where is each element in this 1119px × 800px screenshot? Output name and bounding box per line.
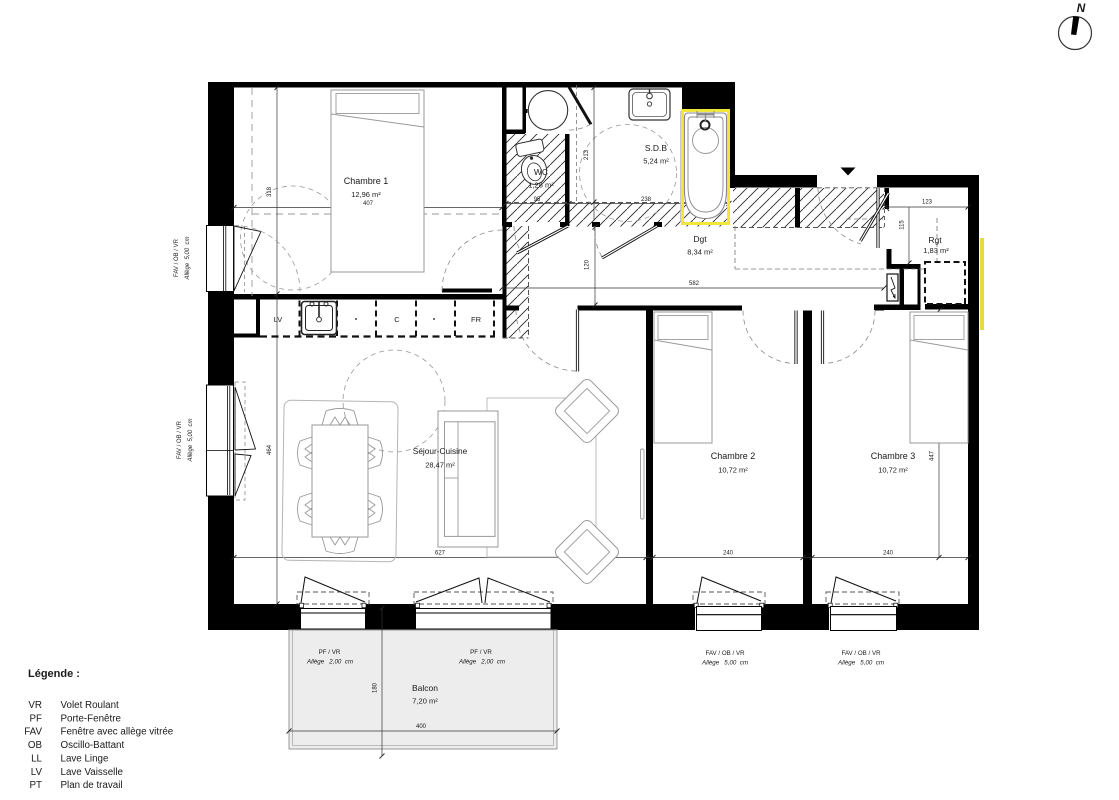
svg-text:318: 318	[267, 186, 273, 197]
svg-text:5,24 m²: 5,24 m²	[643, 157, 669, 166]
svg-text:Chambre 2: Chambre 2	[711, 451, 756, 461]
svg-text:464: 464	[267, 444, 273, 455]
svg-text:180: 180	[373, 682, 379, 693]
svg-text:PF / VR: PF / VR	[319, 649, 341, 656]
svg-text:12,96 m²: 12,96 m²	[351, 190, 381, 199]
svg-text:240: 240	[883, 551, 894, 557]
svg-text:PT: PT	[29, 780, 42, 791]
svg-text:Allège 2,00 cm: Allège 2,00 cm	[306, 658, 353, 665]
svg-text:Oscillo-Battant: Oscillo-Battant	[61, 740, 125, 751]
svg-text:LV: LV	[274, 315, 283, 324]
svg-text:Lave Vaisselle: Lave Vaisselle	[61, 767, 124, 778]
svg-text:407: 407	[363, 201, 374, 207]
svg-text:1,28 m²: 1,28 m²	[528, 181, 554, 190]
svg-text:LL: LL	[31, 753, 42, 764]
svg-text:FAV / OB / VR: FAV / OB / VR	[174, 238, 180, 277]
svg-text:1,83 m²: 1,83 m²	[923, 246, 949, 255]
svg-text:PF / VR: PF / VR	[470, 649, 492, 656]
svg-text:N: N	[1077, 1, 1086, 15]
svg-text:Légende :: Légende :	[28, 668, 80, 680]
svg-text:7,20 m²: 7,20 m²	[412, 697, 438, 706]
svg-text:Dgt: Dgt	[693, 234, 707, 244]
svg-text:Chambre 3: Chambre 3	[871, 451, 916, 461]
svg-text:C: C	[394, 315, 400, 324]
svg-text:FAV: FAV	[24, 727, 42, 738]
svg-text:Balcon: Balcon	[412, 683, 438, 693]
svg-text:8,34 m²: 8,34 m²	[687, 248, 713, 257]
svg-text:238: 238	[641, 197, 652, 203]
svg-text:240: 240	[723, 551, 734, 557]
svg-text:10,72 m²: 10,72 m²	[718, 466, 748, 475]
svg-text:582: 582	[689, 281, 700, 287]
svg-text:Allège 5,00 cm: Allège 5,00 cm	[837, 659, 884, 666]
svg-text:Plan de travail: Plan de travail	[61, 780, 123, 791]
svg-text:Porte-Fenêtre: Porte-Fenêtre	[61, 713, 122, 724]
svg-text:213: 213	[584, 149, 590, 160]
svg-text:Rgt: Rgt	[928, 235, 942, 245]
svg-text:Allège 2,00 cm: Allège 2,00 cm	[458, 658, 505, 665]
svg-text:Allège 5,00 cm: Allège 5,00 cm	[188, 418, 194, 462]
svg-text:10,72 m²: 10,72 m²	[878, 466, 908, 475]
svg-text:FAV / OB / VR: FAV / OB / VR	[705, 650, 745, 657]
svg-text:123: 123	[922, 200, 933, 206]
svg-text:120: 120	[585, 259, 591, 270]
svg-text:FAV / OB / VR: FAV / OB / VR	[177, 420, 183, 459]
svg-text:LV: LV	[31, 767, 43, 778]
svg-text:Volet Roulant: Volet Roulant	[61, 700, 120, 711]
svg-text:PF: PF	[29, 713, 42, 724]
svg-text:FR: FR	[471, 315, 482, 324]
svg-text:95: 95	[534, 197, 541, 203]
svg-text:Séjour-Cuisine: Séjour-Cuisine	[413, 446, 468, 456]
svg-text:Allège 5,00 cm: Allège 5,00 cm	[185, 236, 191, 280]
svg-text:S.D.B: S.D.B	[645, 143, 668, 153]
svg-text:Chambre 1: Chambre 1	[344, 176, 389, 186]
svg-text:400: 400	[416, 724, 427, 730]
svg-text:VR: VR	[28, 700, 42, 711]
svg-text:28,47 m²: 28,47 m²	[425, 461, 455, 470]
svg-text:447: 447	[930, 450, 936, 461]
svg-text:627: 627	[435, 551, 446, 557]
svg-text:115: 115	[900, 220, 906, 230]
svg-text:WC: WC	[534, 167, 548, 177]
svg-text:FAV / OB / VR: FAV / OB / VR	[841, 650, 881, 657]
svg-text:OB: OB	[28, 740, 43, 751]
svg-text:Allège 5,00 cm: Allège 5,00 cm	[701, 659, 748, 666]
svg-text:Lave Linge: Lave Linge	[61, 753, 109, 764]
svg-text:Fenêtre avec allège vitrée: Fenêtre avec allège vitrée	[61, 727, 174, 738]
